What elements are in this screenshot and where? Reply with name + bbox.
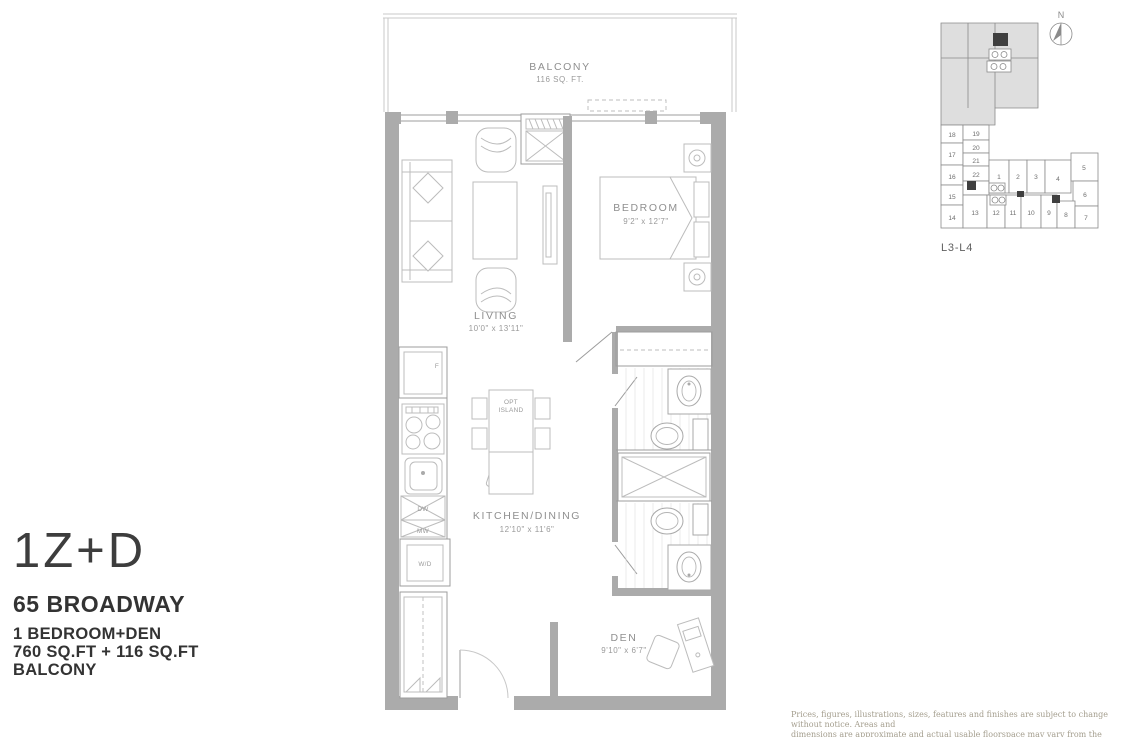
- nightstand: [684, 263, 711, 291]
- unit-2: 2: [1016, 174, 1020, 181]
- unit-1: 1: [997, 174, 1001, 181]
- bedroom-label: BEDROOM: [613, 202, 678, 214]
- desk-chair: [646, 634, 681, 670]
- unit-code: 1Z+D: [13, 525, 199, 579]
- kitchen-sink: [405, 458, 442, 494]
- unit-13: 13: [971, 210, 979, 217]
- den-wall: [550, 622, 558, 710]
- fridge: [399, 347, 447, 398]
- north-label: N: [1058, 10, 1065, 20]
- key-plan: N: [933, 3, 1108, 258]
- tv-console: [543, 186, 557, 264]
- den-label: DEN: [611, 632, 638, 644]
- unit-19: 19: [972, 131, 980, 138]
- unit-12: 12: [992, 210, 1000, 217]
- nightstand: [684, 144, 711, 172]
- bathroom-lower: [626, 503, 711, 590]
- dining-chair: [535, 398, 550, 419]
- unit-7: 7: [1084, 215, 1088, 222]
- window-mullion: [645, 111, 657, 124]
- toilet-tank: [693, 504, 708, 535]
- unit-5: 5: [1082, 165, 1086, 172]
- bed-pillow: [694, 222, 709, 257]
- dining-chair: [535, 428, 550, 449]
- balcony: BALCONY 116 SQ. FT.: [383, 14, 737, 112]
- living-dims: 10'0" x 13'11": [469, 324, 524, 333]
- bed-pillow: [694, 182, 709, 217]
- unit-14: 14: [948, 215, 956, 222]
- unit-6: 6: [1083, 192, 1087, 199]
- shower: [616, 453, 712, 501]
- unit-specs: 1 BEDROOM+DEN 760 SQ.FT + 116 SQ.FT BALC…: [13, 625, 199, 679]
- entry-closet: [400, 592, 447, 698]
- unit-17: 17: [948, 152, 956, 159]
- kitchen-label: KITCHEN/DINING: [473, 510, 581, 522]
- desk: [678, 618, 714, 672]
- bathroom-upper: [616, 368, 712, 450]
- microwave-label: MW: [417, 528, 430, 535]
- armchair: [476, 128, 516, 172]
- unit-type: 1 BEDROOM+DEN: [13, 625, 199, 643]
- disclaimer: Prices, figures, illustrations, sizes, f…: [791, 710, 1123, 737]
- island-label-2: ISLAND: [499, 407, 524, 414]
- dishwasher-label: DW: [417, 506, 429, 513]
- toilet-tank: [693, 419, 708, 450]
- keyplan-upper-wing: [941, 23, 1038, 125]
- entry-door: [460, 650, 508, 698]
- kitchen-dims: 12'10" x 11'6": [500, 525, 555, 534]
- unit-21: 21: [972, 158, 980, 165]
- disclaimer-line-2: dimensions are approximate and actual us…: [791, 730, 1123, 737]
- north-arrow-icon: N: [1050, 10, 1072, 45]
- armchair: [476, 268, 516, 312]
- window-mullion: [446, 111, 458, 124]
- unit-22: 22: [972, 172, 980, 179]
- washer-dryer-label: W/D: [418, 561, 431, 568]
- unit-8: 8: [1064, 212, 1068, 219]
- floorplan-page: BALCONY 116 SQ. FT.: [0, 0, 1142, 737]
- balcony-area: 116 SQ. FT.: [536, 75, 584, 84]
- sink: [677, 376, 701, 406]
- stair-core: [993, 33, 1008, 46]
- project-name: 65 BROADWAY: [13, 591, 199, 618]
- bedroom-dims: 9'2" x 12'7": [623, 217, 668, 226]
- disclaimer-line-1: Prices, figures, illustrations, sizes, f…: [791, 710, 1123, 730]
- sink: [677, 552, 701, 582]
- coffee-table: [473, 182, 517, 259]
- den-dims: 9'10" x 6'7": [601, 646, 646, 655]
- unit-11: 11: [1010, 210, 1017, 217]
- den: DEN 9'10" x 6'7": [601, 618, 714, 672]
- unit-16: 16: [948, 174, 956, 181]
- unit-3: 3: [1034, 174, 1038, 181]
- dining-chair: [472, 428, 487, 449]
- bedroom-door: [576, 332, 612, 362]
- dining-chair: [472, 398, 487, 419]
- title-block: 1Z+D 65 BROADWAY 1 BEDROOM+DEN 760 SQ.FT…: [13, 525, 199, 679]
- bedroom: BEDROOM 9'2" x 12'7": [600, 144, 711, 291]
- unit-4: 4: [1056, 176, 1060, 183]
- unit-10: 10: [1027, 210, 1035, 217]
- island-label-1: OPT: [504, 399, 518, 406]
- bedroom-closet: [616, 332, 712, 366]
- unit-20: 20: [972, 145, 980, 152]
- living-bedroom-wall: [563, 116, 572, 342]
- fridge-label: F: [435, 363, 439, 370]
- unit-18: 18: [948, 132, 956, 139]
- dining-island: OPT ISLAND: [472, 390, 550, 494]
- unit-area: 760 SQ.FT + 116 SQ.FT: [13, 643, 199, 661]
- keyplan-level-label: L3-L4: [941, 242, 973, 254]
- mechanical-shaft: [521, 114, 570, 164]
- living-label: LIVING: [474, 310, 518, 322]
- unit-15: 15: [948, 194, 956, 201]
- unit-extra: BALCONY: [13, 661, 199, 679]
- balcony-label: BALCONY: [529, 61, 590, 73]
- balcony-sliding-door: [588, 100, 666, 111]
- unit-9: 9: [1047, 210, 1051, 217]
